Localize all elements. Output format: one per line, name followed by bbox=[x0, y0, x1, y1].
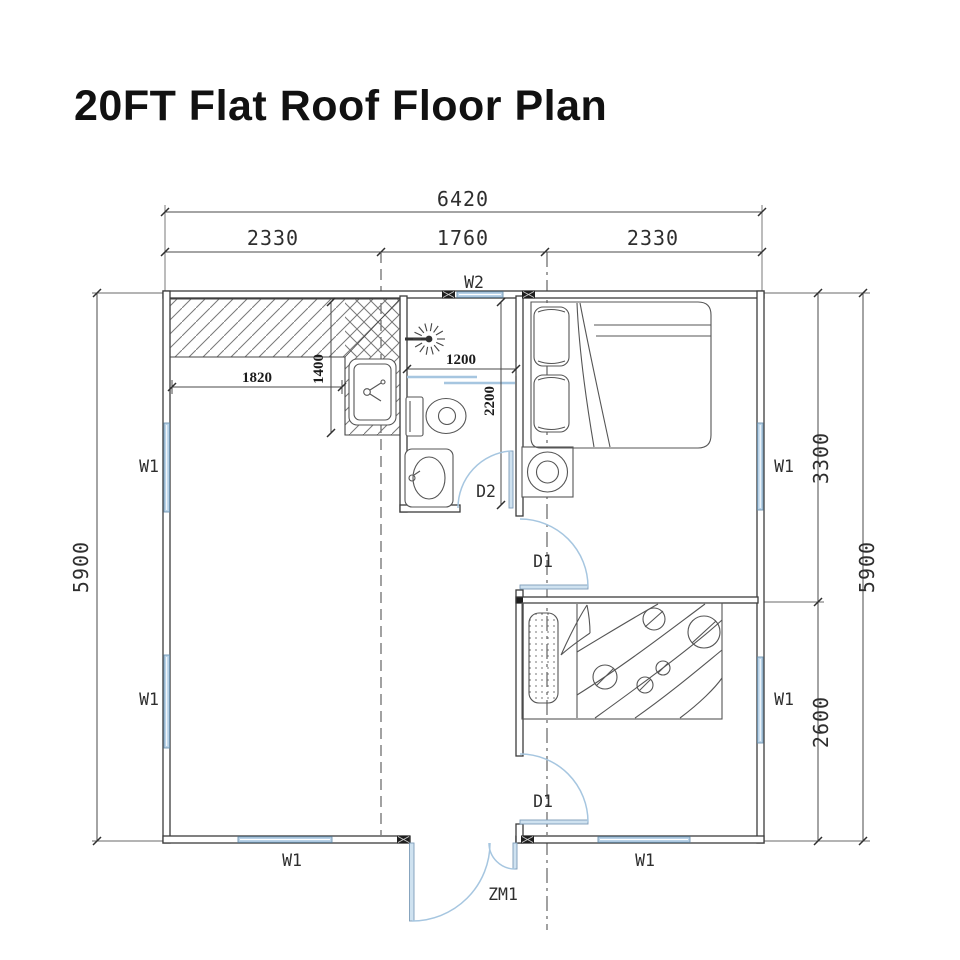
label-w1-right-upper: W1 bbox=[774, 457, 794, 476]
toilet bbox=[406, 397, 466, 436]
window-w1-left-upper bbox=[164, 423, 170, 512]
label-d2: D2 bbox=[476, 482, 496, 501]
dim-top-seg-1: 2330 bbox=[247, 226, 299, 250]
dim-counter-width: 1820 bbox=[242, 370, 272, 386]
window-w1-bottom-left bbox=[238, 837, 332, 843]
label-w2: W2 bbox=[464, 273, 484, 292]
label-w1-left-lower: W1 bbox=[139, 690, 159, 709]
dimension-top: 6420 2330 1760 2330 bbox=[161, 187, 766, 256]
dim-top-seg-3: 2330 bbox=[627, 226, 679, 250]
floor-plan-canvas: 6420 2330 1760 2330 5900 3300 2600 bbox=[0, 0, 960, 960]
label-w1-right-lower: W1 bbox=[774, 690, 794, 709]
dim-top-seg-2: 1760 bbox=[437, 226, 489, 250]
window-w2 bbox=[457, 292, 503, 298]
label-d1-upper: D1 bbox=[533, 552, 553, 571]
dim-overall-width: 6420 bbox=[437, 187, 489, 211]
label-w1-bottom-right: W1 bbox=[635, 851, 655, 870]
wall-posts bbox=[397, 291, 535, 844]
dim-shower-width: 1200 bbox=[446, 352, 476, 368]
floor-plan-page: 20FT Flat Roof Floor Plan 6420 bbox=[0, 0, 960, 960]
washing-machine bbox=[522, 447, 573, 497]
kitchen-sink bbox=[349, 359, 396, 425]
dim-right-upper: 3300 bbox=[809, 432, 833, 484]
shower-glass-screen bbox=[407, 377, 515, 383]
dim-left-height: 5900 bbox=[69, 541, 93, 593]
label-zm1: ZM1 bbox=[488, 885, 518, 904]
window-w1-right-upper bbox=[758, 423, 764, 510]
door-d1-bedroom2 bbox=[520, 754, 588, 824]
label-w1-bottom-left: W1 bbox=[282, 851, 302, 870]
dim-right-lower: 2600 bbox=[809, 696, 833, 748]
single-bed bbox=[522, 603, 722, 719]
dim-right-total: 5900 bbox=[855, 541, 879, 593]
door-zm1-entry bbox=[410, 836, 518, 921]
door-d1-bedroom1 bbox=[520, 519, 588, 589]
dimension-left: 5900 bbox=[69, 289, 101, 845]
shower-head-symbol bbox=[405, 323, 445, 355]
double-bed bbox=[531, 302, 711, 448]
window-w1-right-lower bbox=[758, 657, 764, 743]
window-w1-left-lower bbox=[164, 655, 170, 748]
dim-bath-depth: 2200 bbox=[482, 386, 498, 416]
dim-counter-depth: 1400 bbox=[311, 354, 327, 384]
wash-basin bbox=[405, 449, 453, 507]
dimension-right: 3300 2600 5900 bbox=[809, 289, 879, 845]
window-w1-bottom-right bbox=[598, 837, 690, 843]
label-w1-left-upper: W1 bbox=[139, 457, 159, 476]
label-d1-lower: D1 bbox=[533, 792, 553, 811]
